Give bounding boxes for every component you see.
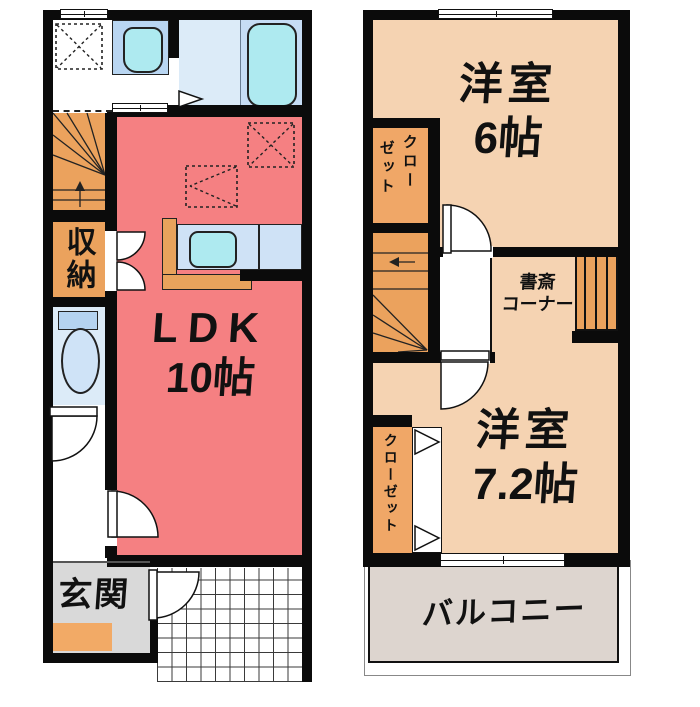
- study-line2: コーナー: [479, 295, 595, 314]
- wall-desk-bottom: [572, 331, 618, 343]
- toilet-door-icon: [50, 407, 102, 465]
- bath-door-icon: [178, 88, 206, 110]
- desk-line-2: [595, 255, 597, 331]
- kitchen-wall-stub: [240, 270, 302, 281]
- kitchen-sink-icon: [189, 231, 237, 268]
- room6-name: 洋室: [406, 62, 609, 108]
- wall-balcony-right: [565, 553, 630, 567]
- entrance-step: [53, 623, 112, 651]
- washbasin-icon: [123, 27, 163, 73]
- room72-label: 洋室 7.2帖: [425, 408, 625, 508]
- wall-balcony-left: [363, 553, 440, 567]
- balcony-window: [440, 553, 565, 567]
- stairs-second-floor-treads: [373, 233, 428, 352]
- wall-2f-left: [363, 10, 373, 567]
- wall-1f-right: [302, 10, 312, 682]
- room6-door-icon: [443, 203, 495, 255]
- storage-door-gap: [105, 231, 117, 291]
- room72-name: 洋室: [423, 408, 626, 454]
- wall-bath-divider: [169, 20, 179, 58]
- room6-label: 洋室 6帖: [408, 62, 608, 162]
- closet-upper-col-left: ゼット: [378, 140, 394, 197]
- kitchen-counter-divider: [258, 224, 260, 270]
- stairs-first-floor-treads: [53, 113, 105, 210]
- wall-closet-lower-top: [373, 415, 412, 427]
- closet-upper-label: ゼット クロー: [376, 134, 424, 220]
- cupboard-space-icon: [185, 165, 238, 208]
- washing-machine-space-icon: [55, 23, 103, 70]
- wall-1f-left: [43, 10, 53, 663]
- desk-line-3: [606, 255, 608, 331]
- study-line1: 書斎: [479, 273, 595, 292]
- refrigerator-space-icon: [247, 122, 295, 168]
- front-door-icon: [149, 570, 201, 622]
- folding-door-icon-bottom: [412, 523, 442, 553]
- storage-label: 収納: [62, 226, 94, 292]
- wall-1f-bottom: [43, 653, 157, 663]
- washroom-sliding-door: [112, 103, 168, 113]
- ldk-size: 10帖: [126, 356, 294, 400]
- kitchen-counter-front: [162, 274, 252, 290]
- wall-entrance-stub: [150, 618, 158, 663]
- toilet-bowl-icon: [61, 328, 100, 394]
- room6-window: [438, 9, 553, 19]
- room72-size: 7.2帖: [423, 462, 626, 508]
- bathtub-icon: [247, 23, 297, 107]
- study-corner-label: 書斎 コーナー: [480, 273, 595, 314]
- entrance-label: 玄関: [57, 578, 131, 614]
- room6-size: 6帖: [406, 116, 609, 162]
- washroom-dashed-boundary: [53, 103, 112, 112]
- entrance-hall-boundary: [53, 561, 150, 563]
- washroom-window: [60, 9, 108, 19]
- ldk-door-icon: [106, 488, 162, 542]
- floor-plan: 収納 LDK 10帖 玄関: [0, 0, 700, 707]
- closet-lower-label: クローゼット: [383, 433, 398, 535]
- room72-door-icon: [441, 360, 493, 412]
- wall-room6-bottom-right: [493, 247, 618, 257]
- wall-storage-top: [53, 210, 115, 222]
- closet-upper-col-right: クロー: [401, 134, 417, 191]
- wall-storage-bottom: [53, 297, 115, 307]
- ldk-label: LDK 10帖: [128, 306, 293, 400]
- storage-double-door-icon: [117, 231, 149, 291]
- balcony-label: バルコニー: [421, 593, 587, 631]
- ldk-name: LDK: [126, 306, 294, 350]
